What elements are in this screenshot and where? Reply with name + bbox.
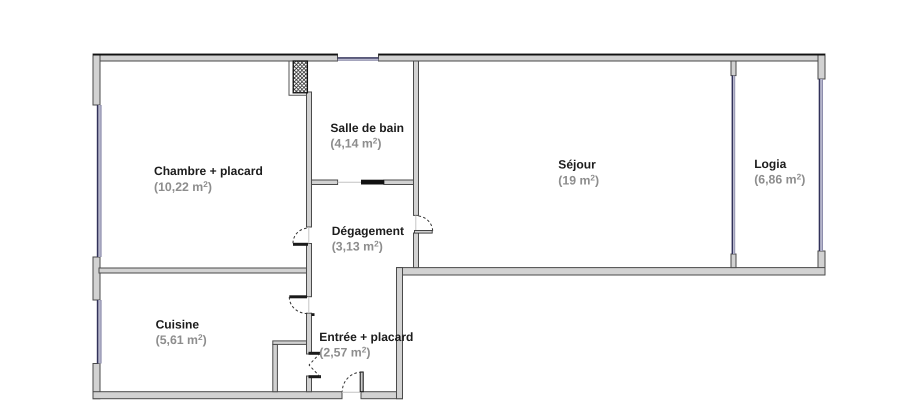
svg-text:Entrée + placard: Entrée + placard (319, 330, 413, 344)
svg-text:Cuisine: Cuisine (156, 318, 200, 332)
svg-text:Dégagement: Dégagement (332, 224, 404, 238)
svg-text:Logia: Logia (754, 157, 786, 171)
svg-text:Séjour: Séjour (558, 158, 596, 172)
svg-text:Salle de bain: Salle de bain (330, 121, 404, 135)
svg-text:Chambre + placard: Chambre + placard (154, 164, 263, 178)
